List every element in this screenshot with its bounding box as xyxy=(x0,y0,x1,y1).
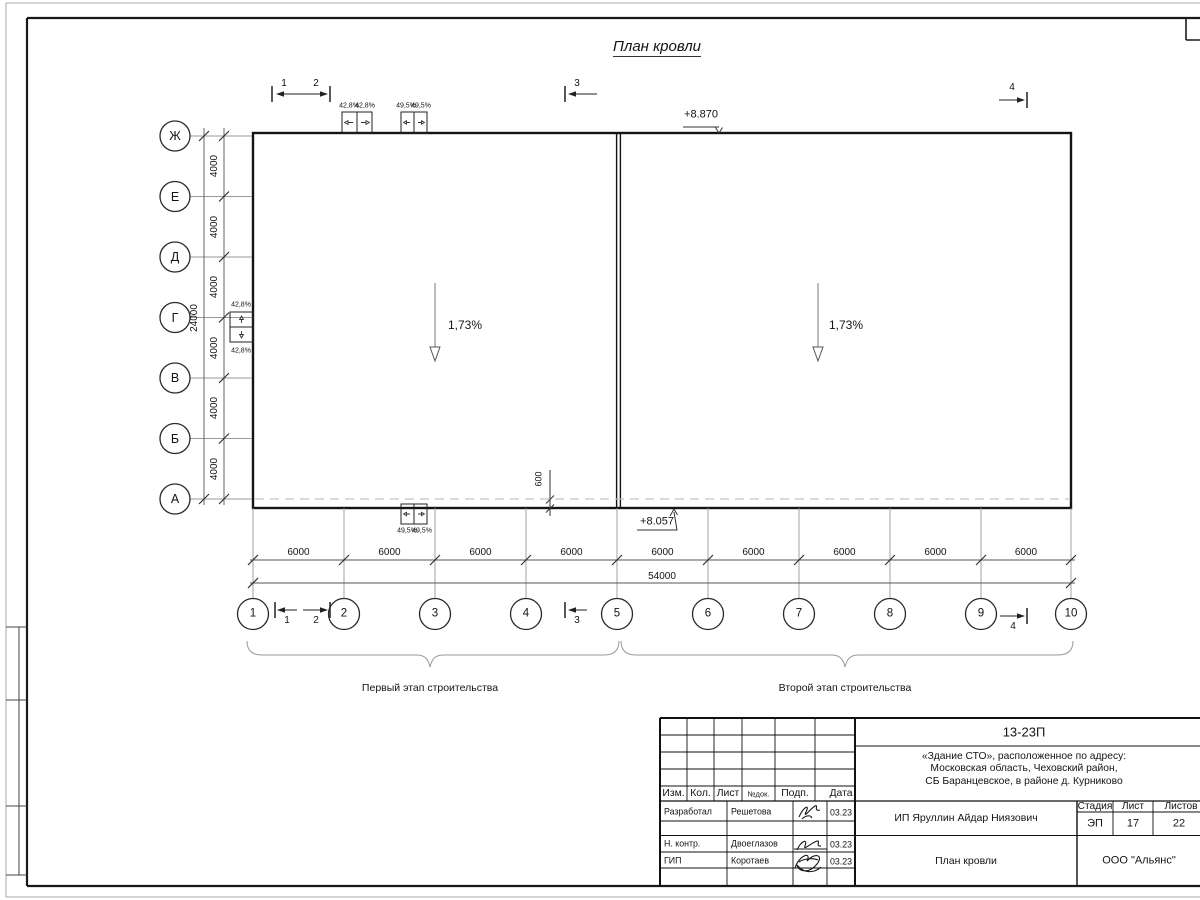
tb-date: 03.23 xyxy=(830,841,852,850)
row-axis-label: Ж xyxy=(169,130,181,143)
col-axis-label: 10 xyxy=(1065,608,1078,620)
sheet-title: План кровли xyxy=(613,39,701,57)
section-mark-label: 3 xyxy=(574,616,580,626)
tb-sheet-value: 17 xyxy=(1127,818,1139,829)
stage-joint-line xyxy=(617,133,621,508)
tb-date: 03.23 xyxy=(830,808,852,817)
section-mark-label: 4 xyxy=(1009,83,1015,93)
row-axis-label: Б xyxy=(171,432,179,445)
section-mark-label: 3 xyxy=(574,79,580,89)
tb-role: Разработал xyxy=(664,808,712,817)
section-mark-label: 2 xyxy=(313,79,319,89)
elevation-leaders xyxy=(546,127,723,530)
stage-braces xyxy=(247,641,1073,667)
project-address-line: «Здание СТО», расположенное по адресу: xyxy=(922,751,1126,761)
tb-header-kol: Кол. xyxy=(690,788,711,798)
funnel-arrow-icons xyxy=(240,121,425,516)
roof-funnel-boxes xyxy=(230,112,427,524)
row-dim-label: 4000 xyxy=(210,155,220,177)
bay-dim-label: 6000 xyxy=(560,548,582,558)
row-axis-label: Г xyxy=(172,311,179,324)
row-dim-label: 4000 xyxy=(210,216,220,238)
col-axis-label: 3 xyxy=(432,608,438,620)
tb-role: ГИП xyxy=(664,856,681,865)
col-axis-label: 1 xyxy=(250,608,256,620)
funnel-slope-label: 42,8% xyxy=(355,103,375,110)
bay-dim-label: 6000 xyxy=(742,548,764,558)
row-dim-label: 4000 xyxy=(210,397,220,419)
col-axis-label: 7 xyxy=(796,608,802,620)
elevation-bottom-label: +8.057 xyxy=(640,516,674,527)
tb-header-data: Дата xyxy=(829,788,852,798)
row-axis-label: Д xyxy=(171,251,179,264)
slope-label: 1,73% xyxy=(448,319,482,331)
row-dim-label: 4000 xyxy=(210,337,220,359)
bay-dim-label: 6000 xyxy=(1015,548,1037,558)
tb-org: ООО "Альянс" xyxy=(1102,855,1176,866)
tb-sheets-label: Листов xyxy=(1164,801,1197,811)
project-address-line: Московская область, Чеховский район, xyxy=(930,764,1117,774)
bay-dim-label: 6000 xyxy=(287,548,309,558)
row-dim-label: 4000 xyxy=(210,458,220,480)
funnel-slope-label: 42,8% xyxy=(231,348,251,355)
overhang-dim-label: 600 xyxy=(535,471,544,486)
drawing-sheet: План кровли Ж Е Д Г В Б А 1 2 3 4 5 6 7 … xyxy=(0,0,1200,900)
bay-dim-label: 6000 xyxy=(651,548,673,558)
row-axis-label: В xyxy=(171,372,179,385)
col-total-dim-label: 54000 xyxy=(648,572,676,582)
tb-stage-value: ЭП xyxy=(1087,818,1103,829)
axis-lines xyxy=(190,136,1071,598)
col-axis-label: 8 xyxy=(887,608,893,620)
tb-header-list: Лист xyxy=(717,788,740,798)
col-axis-label: 5 xyxy=(614,608,620,620)
project-address-line: СБ Баранцевское, в районе д. Курниково xyxy=(925,776,1122,786)
col-axis-label: 9 xyxy=(978,608,984,620)
section-mark-label: 2 xyxy=(313,616,319,626)
col-axis-label: 2 xyxy=(341,608,347,620)
slope-label: 1,73% xyxy=(829,319,863,331)
col-axis-label: 6 xyxy=(705,608,711,620)
funnel-slope-label: 49,5% xyxy=(412,528,432,535)
tb-header-ndok: №док. xyxy=(748,790,770,798)
col-axis-label: 4 xyxy=(523,608,529,620)
roof-outline xyxy=(253,133,1071,508)
section-mark-label: 4 xyxy=(1010,622,1016,632)
funnel-slope-label: 49,5% xyxy=(411,103,431,110)
row-axis-label: А xyxy=(171,493,179,506)
tb-header-izm: Изм. xyxy=(662,788,684,798)
tb-name: Решетова xyxy=(731,808,771,817)
tb-date: 03.23 xyxy=(830,857,852,866)
tb-name: Коротаев xyxy=(731,856,769,865)
bay-dim-label: 6000 xyxy=(469,548,491,558)
tb-header-podp: Подп. xyxy=(781,788,809,798)
tb-sheet-name: План кровли xyxy=(935,855,997,866)
stage-two-label: Второй этап строительства xyxy=(779,683,912,694)
tb-client: ИП Яруллин Айдар Ниязович xyxy=(894,812,1037,823)
funnel-slope-label: 42,8% xyxy=(231,302,251,309)
bay-dim-label: 6000 xyxy=(924,548,946,558)
row-dim-label: 4000 xyxy=(210,276,220,298)
stage-one-label: Первый этап строительства xyxy=(362,683,498,694)
section-mark-label: 1 xyxy=(284,616,290,626)
tb-stage-label: Стадия xyxy=(1078,801,1113,811)
doc-number: 13-23П xyxy=(1003,726,1046,739)
row-total-dim-label: 24000 xyxy=(190,304,200,332)
tb-sheet-label: Лист xyxy=(1122,801,1144,811)
tb-name: Двоеглазов xyxy=(731,840,778,849)
section-mark-label: 1 xyxy=(281,79,287,89)
tb-role: Н. контр. xyxy=(664,840,700,849)
slope-arrow-icon xyxy=(430,283,823,361)
tb-sheets-value: 22 xyxy=(1173,818,1185,829)
signature-scribbles xyxy=(794,806,827,872)
bay-dim-label: 6000 xyxy=(833,548,855,558)
section-marks xyxy=(272,86,1027,624)
row-axis-label: Е xyxy=(171,190,179,203)
bay-dim-label: 6000 xyxy=(378,548,400,558)
dimension-ticks xyxy=(199,131,1076,588)
elevation-top-label: +8.870 xyxy=(684,109,718,120)
